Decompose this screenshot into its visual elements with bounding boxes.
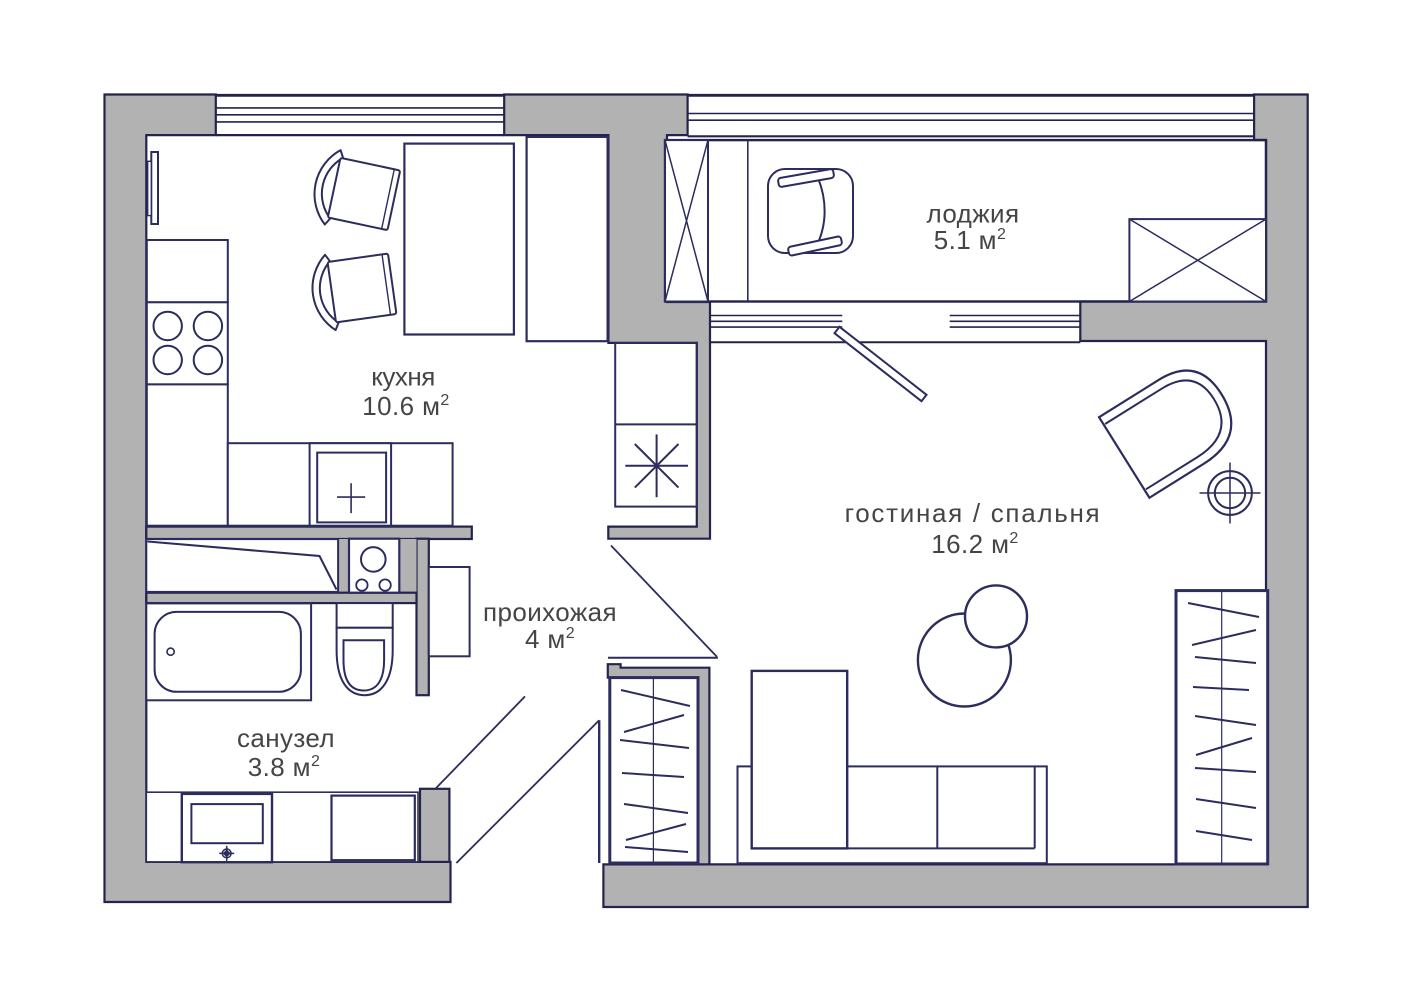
svg-text:кухня: кухня [371, 362, 435, 392]
svg-text:3.8 м2: 3.8 м2 [248, 752, 321, 782]
svg-text:16.2 м2: 16.2 м2 [931, 529, 1018, 559]
svg-text:проихожая: проихожая [483, 597, 617, 627]
svg-text:лоджия: лоджия [927, 198, 1020, 228]
svg-text:10.6 м2: 10.6 м2 [362, 391, 449, 421]
svg-text:санузел: санузел [237, 723, 335, 753]
svg-text:гостиная / спальня: гостиная / спальня [845, 498, 1102, 528]
svg-text:5.1 м2: 5.1 м2 [934, 225, 1007, 255]
